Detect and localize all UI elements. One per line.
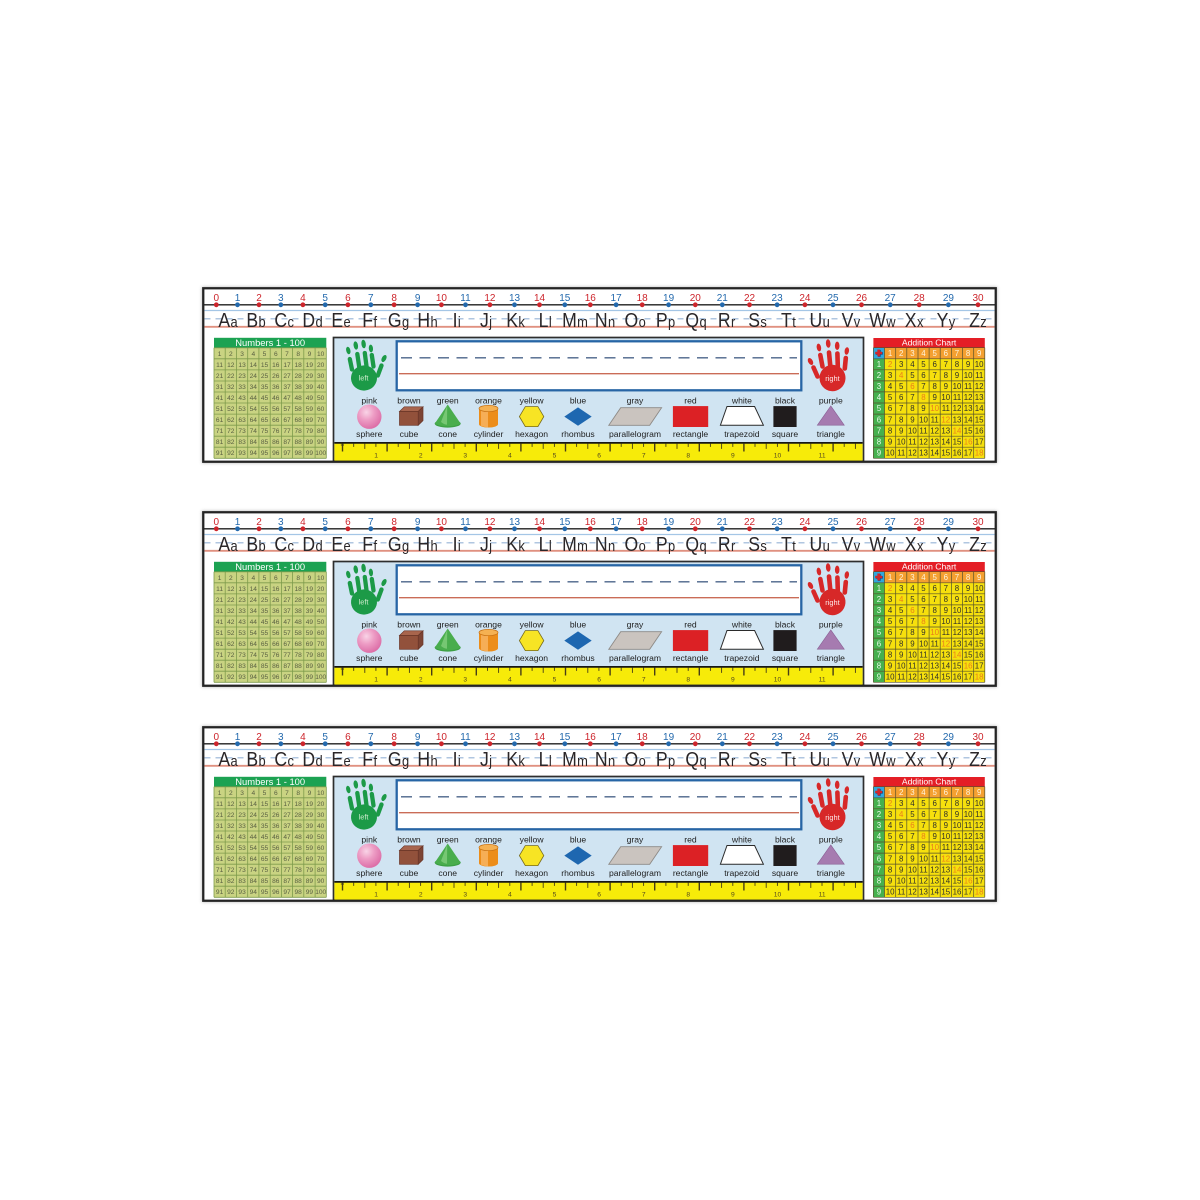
svg-text:69: 69 bbox=[306, 641, 314, 648]
svg-text:0: 0 bbox=[214, 293, 220, 304]
svg-text:30: 30 bbox=[972, 293, 984, 304]
svg-text:91: 91 bbox=[216, 674, 224, 681]
svg-text:4: 4 bbox=[508, 677, 512, 684]
svg-text:14: 14 bbox=[953, 426, 962, 435]
svg-text:5: 5 bbox=[322, 517, 328, 528]
svg-text:12: 12 bbox=[953, 628, 962, 637]
svg-text:6: 6 bbox=[899, 393, 904, 402]
svg-text:Dd: Dd bbox=[302, 310, 322, 333]
svg-text:13: 13 bbox=[941, 865, 950, 874]
svg-text:5: 5 bbox=[263, 790, 267, 797]
svg-text:0: 0 bbox=[214, 517, 220, 528]
svg-text:14: 14 bbox=[964, 639, 973, 648]
svg-text:51: 51 bbox=[216, 406, 224, 413]
svg-text:4: 4 bbox=[899, 810, 904, 819]
svg-text:12: 12 bbox=[227, 801, 235, 808]
svg-text:20: 20 bbox=[317, 362, 325, 369]
svg-text:3: 3 bbox=[899, 360, 904, 369]
svg-text:2: 2 bbox=[256, 293, 262, 304]
svg-text:12: 12 bbox=[484, 293, 496, 304]
svg-text:87: 87 bbox=[283, 663, 291, 670]
svg-text:Ee: Ee bbox=[331, 534, 351, 557]
svg-text:30: 30 bbox=[317, 373, 325, 380]
svg-text:56: 56 bbox=[272, 406, 280, 413]
svg-text:18: 18 bbox=[295, 586, 303, 593]
svg-text:4: 4 bbox=[251, 351, 255, 358]
svg-text:45: 45 bbox=[261, 395, 269, 402]
svg-text:10: 10 bbox=[930, 404, 939, 413]
svg-text:Hh: Hh bbox=[417, 310, 437, 333]
svg-text:97: 97 bbox=[283, 674, 291, 681]
svg-text:Numbers 1 - 100: Numbers 1 - 100 bbox=[235, 776, 305, 787]
svg-text:3: 3 bbox=[910, 788, 915, 797]
svg-text:7: 7 bbox=[921, 821, 925, 830]
svg-text:74: 74 bbox=[250, 867, 258, 874]
svg-text:89: 89 bbox=[306, 663, 314, 670]
svg-text:51: 51 bbox=[216, 845, 224, 852]
svg-text:14: 14 bbox=[534, 517, 546, 528]
svg-text:Ff: Ff bbox=[362, 310, 377, 333]
svg-text:10: 10 bbox=[908, 650, 917, 659]
svg-text:32: 32 bbox=[227, 384, 235, 391]
svg-text:black: black bbox=[775, 395, 796, 405]
svg-text:2: 2 bbox=[888, 360, 892, 369]
svg-text:8: 8 bbox=[888, 865, 893, 874]
svg-text:4: 4 bbox=[910, 584, 915, 593]
svg-text:brown: brown bbox=[397, 619, 421, 629]
svg-text:6: 6 bbox=[274, 575, 278, 582]
svg-text:6: 6 bbox=[944, 573, 949, 582]
svg-text:9: 9 bbox=[888, 661, 893, 670]
svg-text:2: 2 bbox=[899, 573, 903, 582]
svg-text:Numbers 1 - 100: Numbers 1 - 100 bbox=[235, 337, 305, 348]
svg-text:2: 2 bbox=[256, 732, 262, 743]
svg-text:9: 9 bbox=[921, 843, 926, 852]
svg-text:Yy: Yy bbox=[937, 310, 956, 333]
svg-text:8: 8 bbox=[921, 832, 926, 841]
svg-text:5: 5 bbox=[553, 892, 557, 899]
svg-text:20: 20 bbox=[317, 586, 325, 593]
svg-text:Qq: Qq bbox=[685, 534, 706, 557]
svg-text:white: white bbox=[731, 395, 752, 405]
svg-text:10: 10 bbox=[930, 628, 939, 637]
svg-text:12: 12 bbox=[941, 415, 950, 424]
svg-text:7: 7 bbox=[955, 573, 959, 582]
svg-text:96: 96 bbox=[272, 450, 280, 457]
svg-text:triangle: triangle bbox=[817, 653, 845, 663]
svg-text:Hh: Hh bbox=[417, 534, 437, 557]
svg-text:11: 11 bbox=[216, 362, 223, 369]
svg-text:49: 49 bbox=[306, 395, 314, 402]
svg-text:7: 7 bbox=[910, 617, 914, 626]
svg-text:83: 83 bbox=[238, 439, 246, 446]
svg-text:87: 87 bbox=[283, 878, 291, 885]
svg-text:17: 17 bbox=[964, 672, 973, 681]
svg-text:9: 9 bbox=[308, 575, 312, 582]
svg-text:Jj: Jj bbox=[480, 534, 492, 557]
svg-text:62: 62 bbox=[227, 417, 235, 424]
svg-text:16: 16 bbox=[953, 672, 962, 681]
svg-text:Xx: Xx bbox=[905, 310, 924, 333]
svg-text:Ss: Ss bbox=[748, 749, 767, 772]
svg-text:13: 13 bbox=[930, 876, 939, 885]
svg-text:11: 11 bbox=[919, 426, 927, 435]
svg-text:22: 22 bbox=[227, 373, 235, 380]
svg-text:red: red bbox=[684, 395, 697, 405]
svg-text:76: 76 bbox=[272, 867, 280, 874]
svg-text:17: 17 bbox=[964, 887, 973, 896]
svg-text:14: 14 bbox=[250, 586, 258, 593]
svg-text:26: 26 bbox=[856, 732, 868, 743]
svg-text:18: 18 bbox=[637, 517, 649, 528]
svg-text:14: 14 bbox=[930, 672, 939, 681]
svg-text:3: 3 bbox=[899, 584, 904, 593]
svg-text:5: 5 bbox=[933, 573, 938, 582]
svg-text:11: 11 bbox=[964, 606, 972, 615]
svg-text:12: 12 bbox=[975, 821, 984, 830]
svg-text:90: 90 bbox=[317, 878, 325, 885]
svg-text:Ii: Ii bbox=[453, 749, 461, 772]
svg-text:9: 9 bbox=[921, 628, 926, 637]
svg-text:1: 1 bbox=[888, 349, 892, 358]
svg-text:Nn: Nn bbox=[595, 310, 615, 333]
svg-text:Cc: Cc bbox=[274, 534, 294, 557]
svg-text:4: 4 bbox=[888, 821, 893, 830]
svg-text:75: 75 bbox=[261, 652, 269, 659]
svg-text:11: 11 bbox=[919, 650, 927, 659]
svg-text:95: 95 bbox=[261, 450, 269, 457]
svg-text:1: 1 bbox=[877, 360, 881, 369]
svg-text:9: 9 bbox=[308, 351, 312, 358]
svg-text:21: 21 bbox=[216, 597, 224, 604]
svg-text:cone: cone bbox=[438, 429, 457, 439]
svg-text:Pp: Pp bbox=[656, 310, 676, 333]
svg-text:76: 76 bbox=[272, 652, 280, 659]
svg-text:88: 88 bbox=[295, 878, 303, 885]
svg-text:11: 11 bbox=[975, 371, 983, 380]
svg-text:Jj: Jj bbox=[480, 310, 492, 333]
svg-text:9: 9 bbox=[308, 790, 312, 797]
svg-text:10: 10 bbox=[886, 448, 895, 457]
svg-text:4: 4 bbox=[910, 799, 915, 808]
svg-text:Ss: Ss bbox=[748, 310, 767, 333]
svg-text:7: 7 bbox=[955, 788, 959, 797]
svg-text:11: 11 bbox=[908, 437, 916, 446]
svg-text:triangle: triangle bbox=[817, 868, 845, 878]
svg-text:71: 71 bbox=[216, 867, 224, 874]
svg-text:96: 96 bbox=[272, 889, 280, 896]
svg-text:52: 52 bbox=[227, 845, 235, 852]
svg-text:2: 2 bbox=[256, 517, 262, 528]
svg-text:2: 2 bbox=[899, 349, 903, 358]
svg-text:43: 43 bbox=[238, 395, 246, 402]
svg-text:8: 8 bbox=[921, 393, 926, 402]
svg-text:17: 17 bbox=[283, 586, 291, 593]
svg-text:12: 12 bbox=[919, 661, 928, 670]
svg-text:11: 11 bbox=[942, 404, 950, 413]
svg-text:19: 19 bbox=[306, 801, 314, 808]
svg-text:24: 24 bbox=[250, 812, 258, 819]
svg-text:17: 17 bbox=[611, 293, 623, 304]
svg-text:14: 14 bbox=[250, 801, 258, 808]
svg-text:8: 8 bbox=[877, 876, 882, 885]
svg-text:right: right bbox=[825, 374, 839, 383]
svg-text:sphere: sphere bbox=[356, 429, 382, 439]
svg-text:Kk: Kk bbox=[506, 534, 525, 557]
svg-text:2: 2 bbox=[229, 790, 233, 797]
svg-text:2: 2 bbox=[877, 810, 881, 819]
svg-text:12: 12 bbox=[964, 617, 973, 626]
svg-text:42: 42 bbox=[227, 619, 235, 626]
svg-text:Gg: Gg bbox=[388, 749, 409, 772]
svg-text:86: 86 bbox=[272, 878, 280, 885]
svg-text:62: 62 bbox=[227, 856, 235, 863]
svg-text:61: 61 bbox=[216, 856, 224, 863]
svg-text:5: 5 bbox=[933, 349, 938, 358]
svg-text:4: 4 bbox=[899, 595, 904, 604]
svg-text:6: 6 bbox=[933, 584, 938, 593]
svg-text:5: 5 bbox=[263, 575, 267, 582]
svg-text:82: 82 bbox=[227, 663, 235, 670]
svg-text:28: 28 bbox=[914, 732, 926, 743]
svg-text:5: 5 bbox=[553, 677, 557, 684]
svg-text:Ll: Ll bbox=[539, 310, 552, 333]
svg-text:7: 7 bbox=[877, 426, 881, 435]
svg-text:7: 7 bbox=[368, 517, 374, 528]
svg-text:6: 6 bbox=[899, 617, 904, 626]
svg-text:11: 11 bbox=[964, 382, 972, 391]
svg-text:5: 5 bbox=[899, 821, 904, 830]
svg-text:29: 29 bbox=[943, 517, 955, 528]
svg-text:hexagon: hexagon bbox=[515, 429, 548, 439]
svg-text:7: 7 bbox=[910, 393, 914, 402]
svg-text:Cc: Cc bbox=[274, 749, 294, 772]
svg-text:28: 28 bbox=[295, 373, 303, 380]
svg-text:29: 29 bbox=[943, 732, 955, 743]
svg-text:8: 8 bbox=[966, 349, 971, 358]
svg-text:2: 2 bbox=[229, 351, 233, 358]
svg-text:26: 26 bbox=[856, 293, 868, 304]
svg-text:40: 40 bbox=[317, 823, 325, 830]
svg-text:48: 48 bbox=[295, 834, 303, 841]
svg-text:13: 13 bbox=[930, 661, 939, 670]
svg-text:4: 4 bbox=[921, 573, 926, 582]
svg-text:83: 83 bbox=[238, 663, 246, 670]
svg-text:57: 57 bbox=[283, 406, 291, 413]
svg-text:10: 10 bbox=[953, 606, 962, 615]
svg-text:pink: pink bbox=[361, 619, 377, 629]
svg-text:13: 13 bbox=[930, 437, 939, 446]
svg-text:cone: cone bbox=[438, 653, 457, 663]
svg-text:44: 44 bbox=[250, 834, 258, 841]
svg-text:17: 17 bbox=[611, 732, 623, 743]
svg-text:Ww: Ww bbox=[869, 534, 896, 557]
svg-text:5: 5 bbox=[877, 404, 882, 413]
svg-text:7: 7 bbox=[933, 810, 937, 819]
svg-text:6: 6 bbox=[921, 371, 926, 380]
svg-text:90: 90 bbox=[317, 439, 325, 446]
svg-text:8: 8 bbox=[921, 617, 926, 626]
svg-text:11: 11 bbox=[460, 517, 471, 528]
svg-text:Addition Chart: Addition Chart bbox=[902, 338, 957, 348]
svg-text:5: 5 bbox=[899, 382, 904, 391]
svg-text:23: 23 bbox=[238, 597, 246, 604]
svg-text:1: 1 bbox=[374, 677, 378, 684]
svg-text:30: 30 bbox=[317, 597, 325, 604]
svg-text:6: 6 bbox=[597, 453, 601, 460]
svg-text:Tt: Tt bbox=[781, 749, 796, 772]
svg-text:7: 7 bbox=[910, 832, 914, 841]
svg-text:26: 26 bbox=[272, 812, 280, 819]
svg-text:Ff: Ff bbox=[362, 749, 377, 772]
svg-text:20: 20 bbox=[317, 801, 325, 808]
svg-text:58: 58 bbox=[295, 630, 303, 637]
svg-text:78: 78 bbox=[295, 652, 303, 659]
svg-text:sphere: sphere bbox=[356, 653, 382, 663]
svg-text:5: 5 bbox=[888, 617, 893, 626]
svg-text:8: 8 bbox=[933, 382, 938, 391]
svg-text:1: 1 bbox=[888, 788, 892, 797]
svg-text:12: 12 bbox=[975, 382, 984, 391]
svg-text:22: 22 bbox=[744, 732, 756, 743]
svg-text:9: 9 bbox=[977, 573, 982, 582]
svg-text:Aa: Aa bbox=[218, 310, 238, 333]
svg-text:16: 16 bbox=[953, 887, 962, 896]
svg-text:9: 9 bbox=[944, 382, 949, 391]
svg-text:Rr: Rr bbox=[718, 749, 736, 772]
svg-text:12: 12 bbox=[919, 876, 928, 885]
svg-text:7: 7 bbox=[899, 628, 903, 637]
svg-text:48: 48 bbox=[295, 395, 303, 402]
svg-text:Ii: Ii bbox=[453, 310, 461, 333]
svg-text:8: 8 bbox=[910, 843, 915, 852]
svg-text:19: 19 bbox=[663, 732, 675, 743]
svg-text:10: 10 bbox=[897, 876, 906, 885]
svg-text:10: 10 bbox=[436, 517, 448, 528]
svg-text:65: 65 bbox=[261, 856, 269, 863]
svg-text:94: 94 bbox=[250, 889, 258, 896]
svg-text:Rr: Rr bbox=[718, 310, 736, 333]
svg-text:9: 9 bbox=[899, 426, 904, 435]
svg-text:orange: orange bbox=[475, 619, 502, 629]
svg-text:13: 13 bbox=[964, 628, 973, 637]
svg-text:cone: cone bbox=[438, 868, 457, 878]
svg-text:2: 2 bbox=[419, 677, 423, 684]
svg-text:15: 15 bbox=[559, 732, 571, 743]
svg-text:9: 9 bbox=[415, 293, 421, 304]
svg-text:100: 100 bbox=[315, 889, 326, 896]
svg-text:8: 8 bbox=[391, 293, 397, 304]
svg-text:5: 5 bbox=[322, 732, 328, 743]
svg-text:25: 25 bbox=[827, 293, 839, 304]
svg-text:in: in bbox=[341, 881, 345, 886]
svg-text:Cc: Cc bbox=[274, 310, 294, 333]
svg-text:15: 15 bbox=[941, 887, 950, 896]
svg-text:11: 11 bbox=[819, 677, 826, 684]
svg-text:8: 8 bbox=[955, 360, 960, 369]
svg-text:25: 25 bbox=[261, 373, 269, 380]
svg-text:95: 95 bbox=[261, 889, 269, 896]
svg-text:Jj: Jj bbox=[480, 749, 492, 772]
svg-text:42: 42 bbox=[227, 834, 235, 841]
svg-text:8: 8 bbox=[391, 517, 397, 528]
svg-text:3: 3 bbox=[899, 799, 904, 808]
svg-text:49: 49 bbox=[306, 834, 314, 841]
svg-text:28: 28 bbox=[914, 293, 926, 304]
svg-text:23: 23 bbox=[772, 517, 784, 528]
svg-text:100: 100 bbox=[315, 450, 326, 457]
svg-text:25: 25 bbox=[827, 732, 839, 743]
svg-text:Xx: Xx bbox=[905, 534, 924, 557]
svg-text:54: 54 bbox=[250, 630, 258, 637]
svg-text:Qq: Qq bbox=[685, 749, 706, 772]
svg-text:2: 2 bbox=[877, 371, 881, 380]
svg-text:11: 11 bbox=[908, 876, 916, 885]
svg-text:11: 11 bbox=[216, 801, 223, 808]
svg-text:green: green bbox=[437, 834, 459, 844]
svg-text:17: 17 bbox=[975, 876, 984, 885]
svg-text:1: 1 bbox=[235, 517, 241, 528]
svg-text:5: 5 bbox=[910, 371, 915, 380]
svg-text:91: 91 bbox=[216, 450, 224, 457]
svg-text:87: 87 bbox=[283, 439, 291, 446]
svg-text:5: 5 bbox=[899, 606, 904, 615]
svg-text:12: 12 bbox=[964, 832, 973, 841]
svg-text:31: 31 bbox=[216, 823, 224, 830]
svg-text:4: 4 bbox=[300, 732, 306, 743]
svg-text:17: 17 bbox=[964, 448, 973, 457]
svg-text:37: 37 bbox=[283, 823, 291, 830]
svg-text:24: 24 bbox=[799, 293, 811, 304]
svg-text:52: 52 bbox=[227, 406, 235, 413]
svg-text:7: 7 bbox=[642, 677, 646, 684]
svg-text:46: 46 bbox=[272, 619, 280, 626]
svg-text:4: 4 bbox=[921, 788, 926, 797]
svg-text:4: 4 bbox=[921, 349, 926, 358]
svg-text:6: 6 bbox=[888, 843, 893, 852]
svg-text:12: 12 bbox=[908, 887, 917, 896]
svg-text:5: 5 bbox=[910, 595, 915, 604]
svg-text:gray: gray bbox=[627, 619, 644, 629]
svg-text:Dd: Dd bbox=[302, 749, 322, 772]
svg-text:Numbers 1 - 100: Numbers 1 - 100 bbox=[235, 561, 305, 572]
svg-text:13: 13 bbox=[953, 854, 962, 863]
svg-text:73: 73 bbox=[238, 652, 246, 659]
svg-text:7: 7 bbox=[285, 790, 289, 797]
svg-text:59: 59 bbox=[306, 630, 314, 637]
svg-text:14: 14 bbox=[534, 293, 546, 304]
svg-text:14: 14 bbox=[964, 854, 973, 863]
svg-text:16: 16 bbox=[964, 876, 973, 885]
svg-text:Hh: Hh bbox=[417, 749, 437, 772]
svg-text:17: 17 bbox=[283, 362, 291, 369]
svg-text:90: 90 bbox=[317, 663, 325, 670]
svg-text:2: 2 bbox=[229, 575, 233, 582]
svg-text:9: 9 bbox=[731, 892, 735, 899]
svg-text:7: 7 bbox=[933, 595, 937, 604]
svg-text:19: 19 bbox=[306, 362, 314, 369]
svg-text:left: left bbox=[359, 373, 369, 382]
svg-text:11: 11 bbox=[931, 854, 939, 863]
svg-text:42: 42 bbox=[227, 395, 235, 402]
svg-text:21: 21 bbox=[717, 293, 729, 304]
svg-text:10: 10 bbox=[953, 382, 962, 391]
svg-text:6: 6 bbox=[597, 892, 601, 899]
svg-text:Oo: Oo bbox=[624, 310, 646, 333]
svg-text:80: 80 bbox=[317, 428, 325, 435]
svg-text:86: 86 bbox=[272, 663, 280, 670]
svg-text:45: 45 bbox=[261, 834, 269, 841]
